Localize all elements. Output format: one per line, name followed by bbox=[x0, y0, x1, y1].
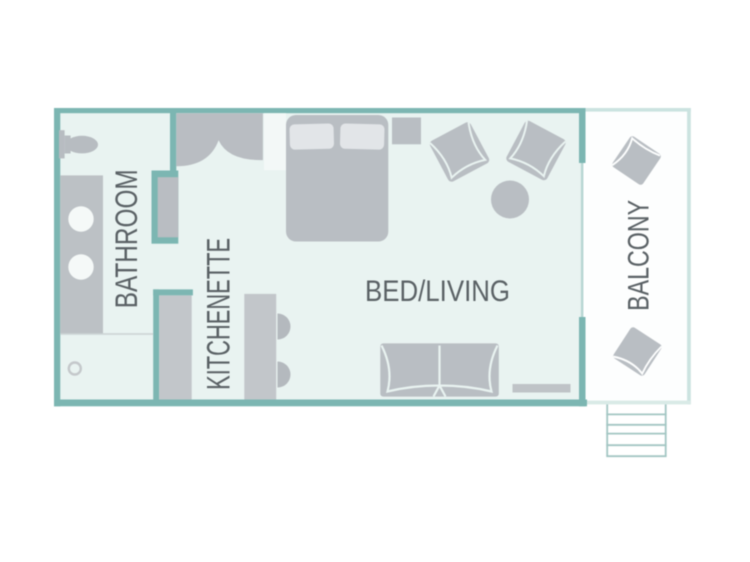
svg-text:BALCONY: BALCONY bbox=[623, 200, 656, 311]
svg-text:BED/LIVING: BED/LIVING bbox=[365, 275, 510, 308]
svg-text:KITCHENETTE: KITCHENETTE bbox=[200, 238, 236, 390]
svg-text:BATHROOM: BATHROOM bbox=[108, 169, 144, 308]
